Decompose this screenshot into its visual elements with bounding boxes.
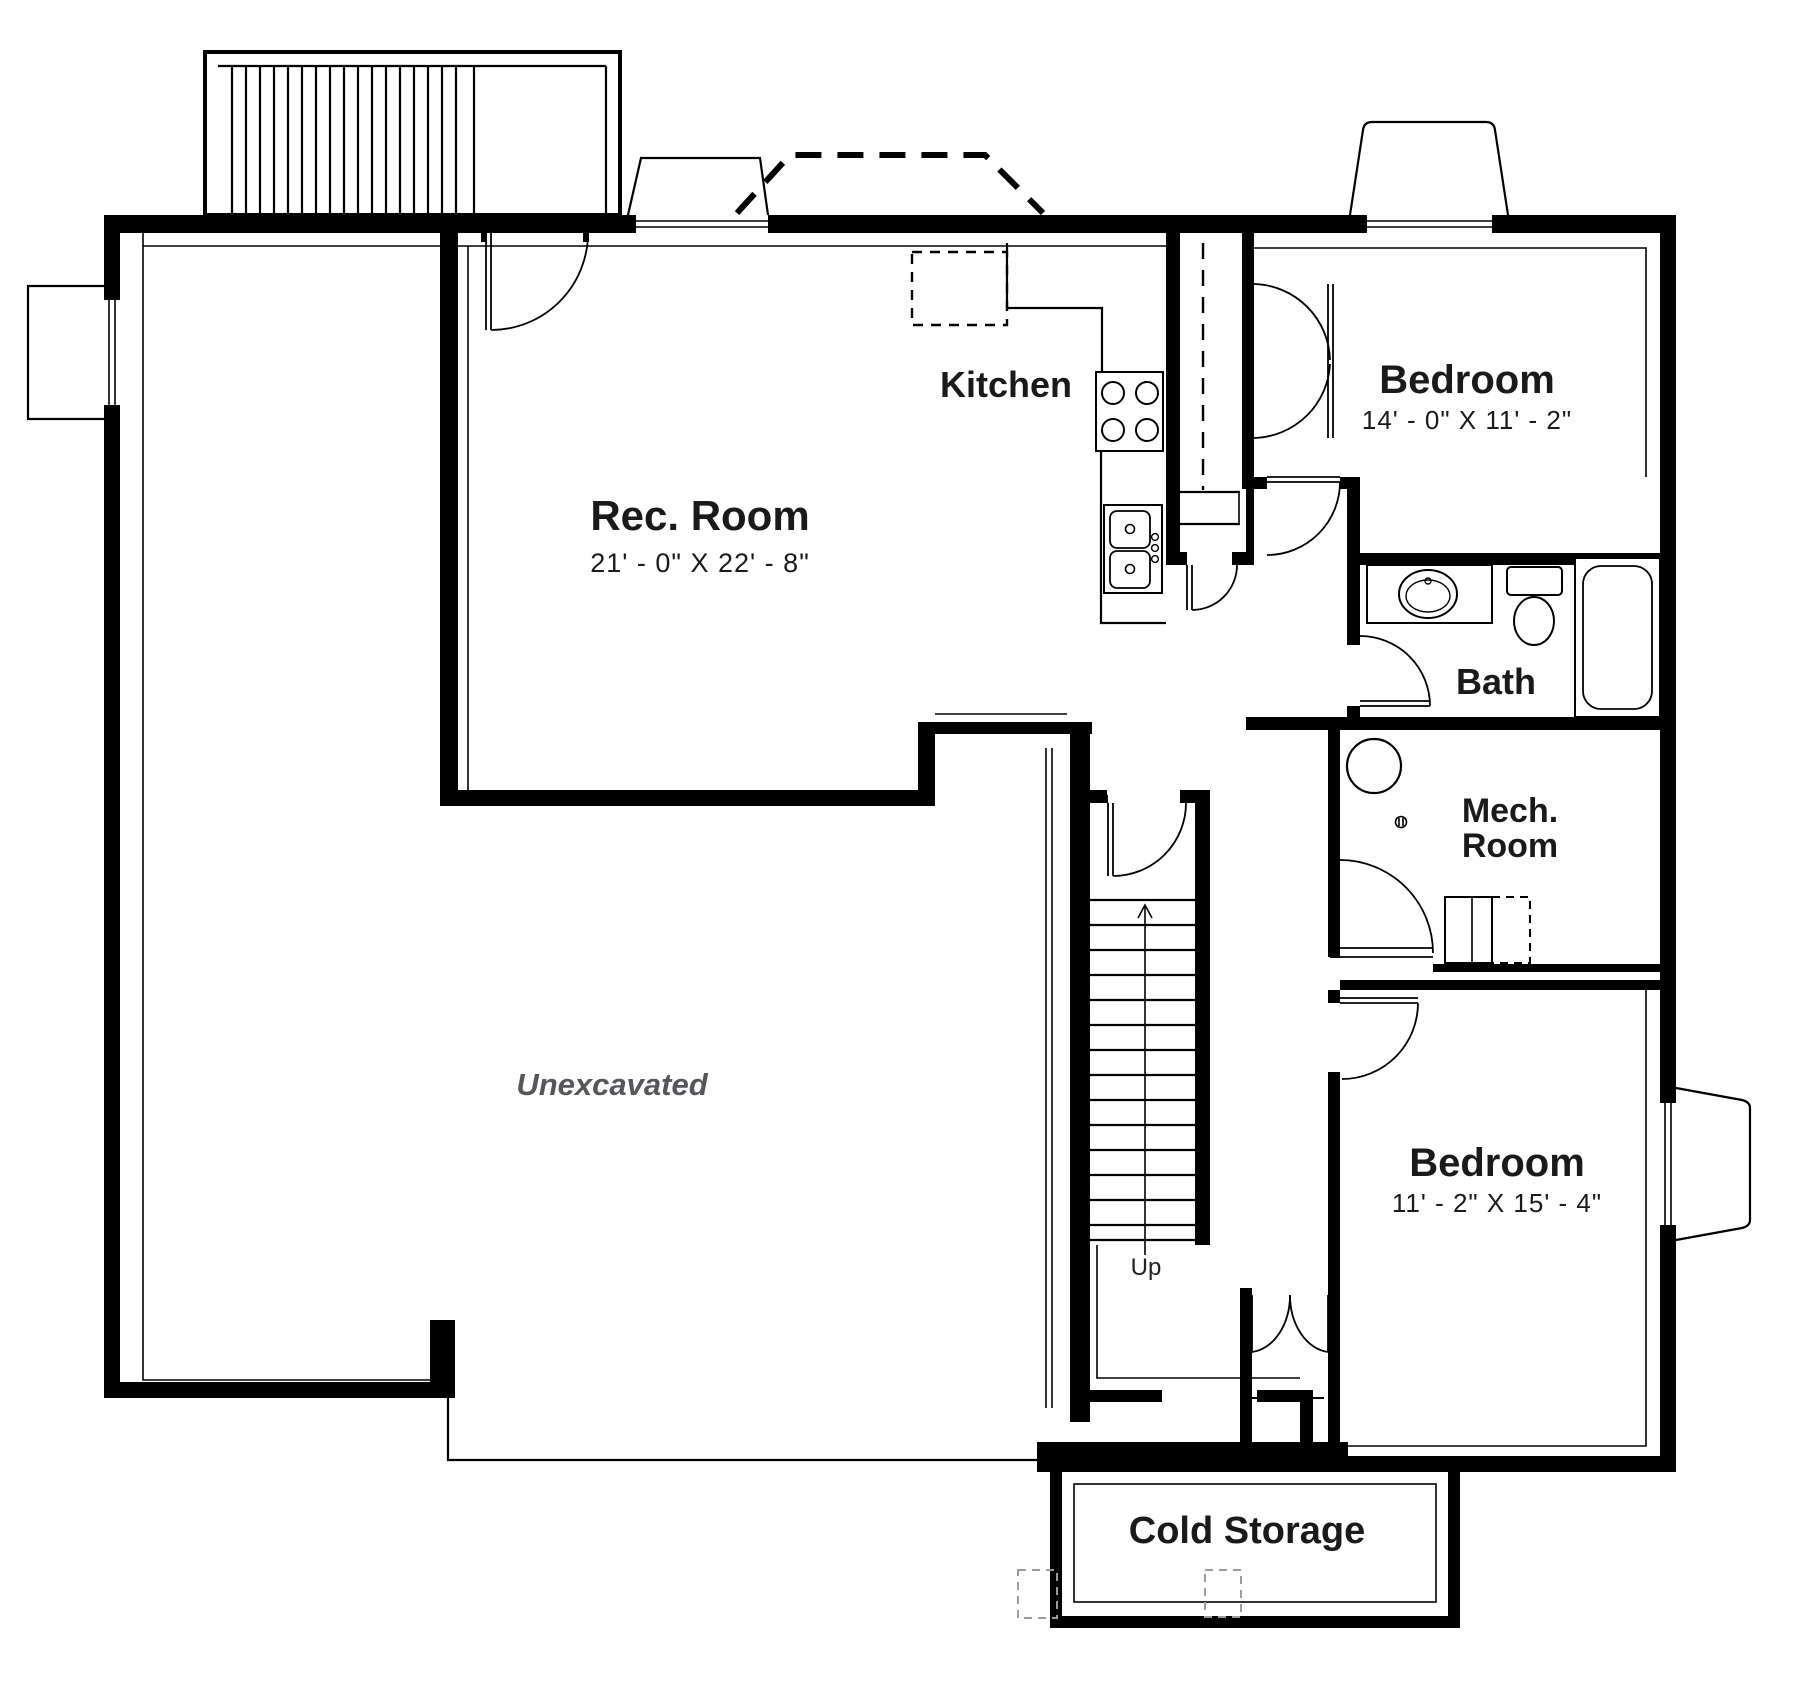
bath-door — [1349, 629, 1430, 713]
bedroom-lower-label: Bedroom — [1409, 1141, 1585, 1185]
bedroom-upper-label: Bedroom — [1379, 358, 1555, 402]
bedroom-upper-closet-doors — [1254, 284, 1333, 438]
unexcavated-south-edge — [448, 1398, 1037, 1460]
bedroom-upper-door — [1260, 477, 1347, 555]
window-well-icon — [28, 286, 104, 419]
bedroom-upper-dims: 14' - 0" X 11' - 2" — [1362, 405, 1572, 435]
counter-edge — [1007, 243, 1102, 372]
furnace-icon — [1445, 897, 1530, 963]
refrigerator-icon — [912, 252, 1007, 325]
floor-drain-icon — [1396, 817, 1407, 828]
floor-plan: Up — [0, 0, 1800, 1700]
stair-treads — [1090, 900, 1195, 1240]
mech-room-door — [1330, 860, 1433, 958]
cold-storage-label: Cold Storage — [1129, 1510, 1365, 1552]
kitchen-label: Kitchen — [940, 364, 1072, 405]
rec-room-dims: 21' - 0" X 22' - 8" — [590, 548, 810, 578]
exterior-stairs — [205, 52, 620, 215]
exterior-walls — [104, 215, 1676, 1472]
room-labels: Rec. Room 21' - 0" X 22' - 8" Kitchen Be… — [516, 358, 1602, 1552]
wall-pier — [430, 1320, 455, 1398]
toilet-icon — [1507, 567, 1562, 645]
stair-top-door — [1101, 795, 1187, 876]
mech-room-label-line1: Mech. — [1462, 792, 1558, 830]
doors — [481, 233, 1433, 1398]
kitchen-hall-door — [1180, 556, 1239, 610]
exterior-stair-treads — [232, 66, 456, 215]
stairs-up-label: Up — [1131, 1254, 1162, 1281]
bedroom-lower-door — [1328, 993, 1418, 1079]
bedroom-lower-dims: 11' - 2" X 15' - 4" — [1392, 1188, 1602, 1218]
bath-label: Bath — [1456, 661, 1536, 702]
window-bedroom-upper — [1361, 215, 1498, 233]
rec-room-label: Rec. Room — [590, 492, 809, 539]
unexcavated-label: Unexcavated — [516, 1067, 708, 1102]
deck-outline-dashed — [737, 155, 1043, 213]
window-rec-room — [630, 215, 774, 233]
bathtub-icon — [1575, 558, 1660, 717]
bedroom-lower-closet-doors — [1252, 1295, 1328, 1398]
kitchen-fixtures — [912, 243, 1240, 623]
water-heater-icon — [1347, 739, 1401, 793]
rec-room-exterior-door — [481, 233, 589, 330]
bathroom-sink-icon — [1367, 565, 1492, 623]
footing-icon — [1205, 1570, 1241, 1617]
window-left-wall — [104, 294, 120, 411]
window-bedroom-lower — [1660, 1097, 1676, 1231]
range-cooktop-icon — [1096, 372, 1163, 451]
window-well-icon — [1676, 1088, 1750, 1240]
mech-room-label-line2: Room — [1462, 827, 1558, 865]
up-direction-arrow — [1138, 905, 1152, 1255]
kitchen-sink-icon — [1104, 505, 1162, 593]
interior-stairs: Up — [1090, 900, 1195, 1281]
closet-shelf-lines — [1180, 492, 1240, 524]
window-well-icon — [1350, 122, 1508, 215]
